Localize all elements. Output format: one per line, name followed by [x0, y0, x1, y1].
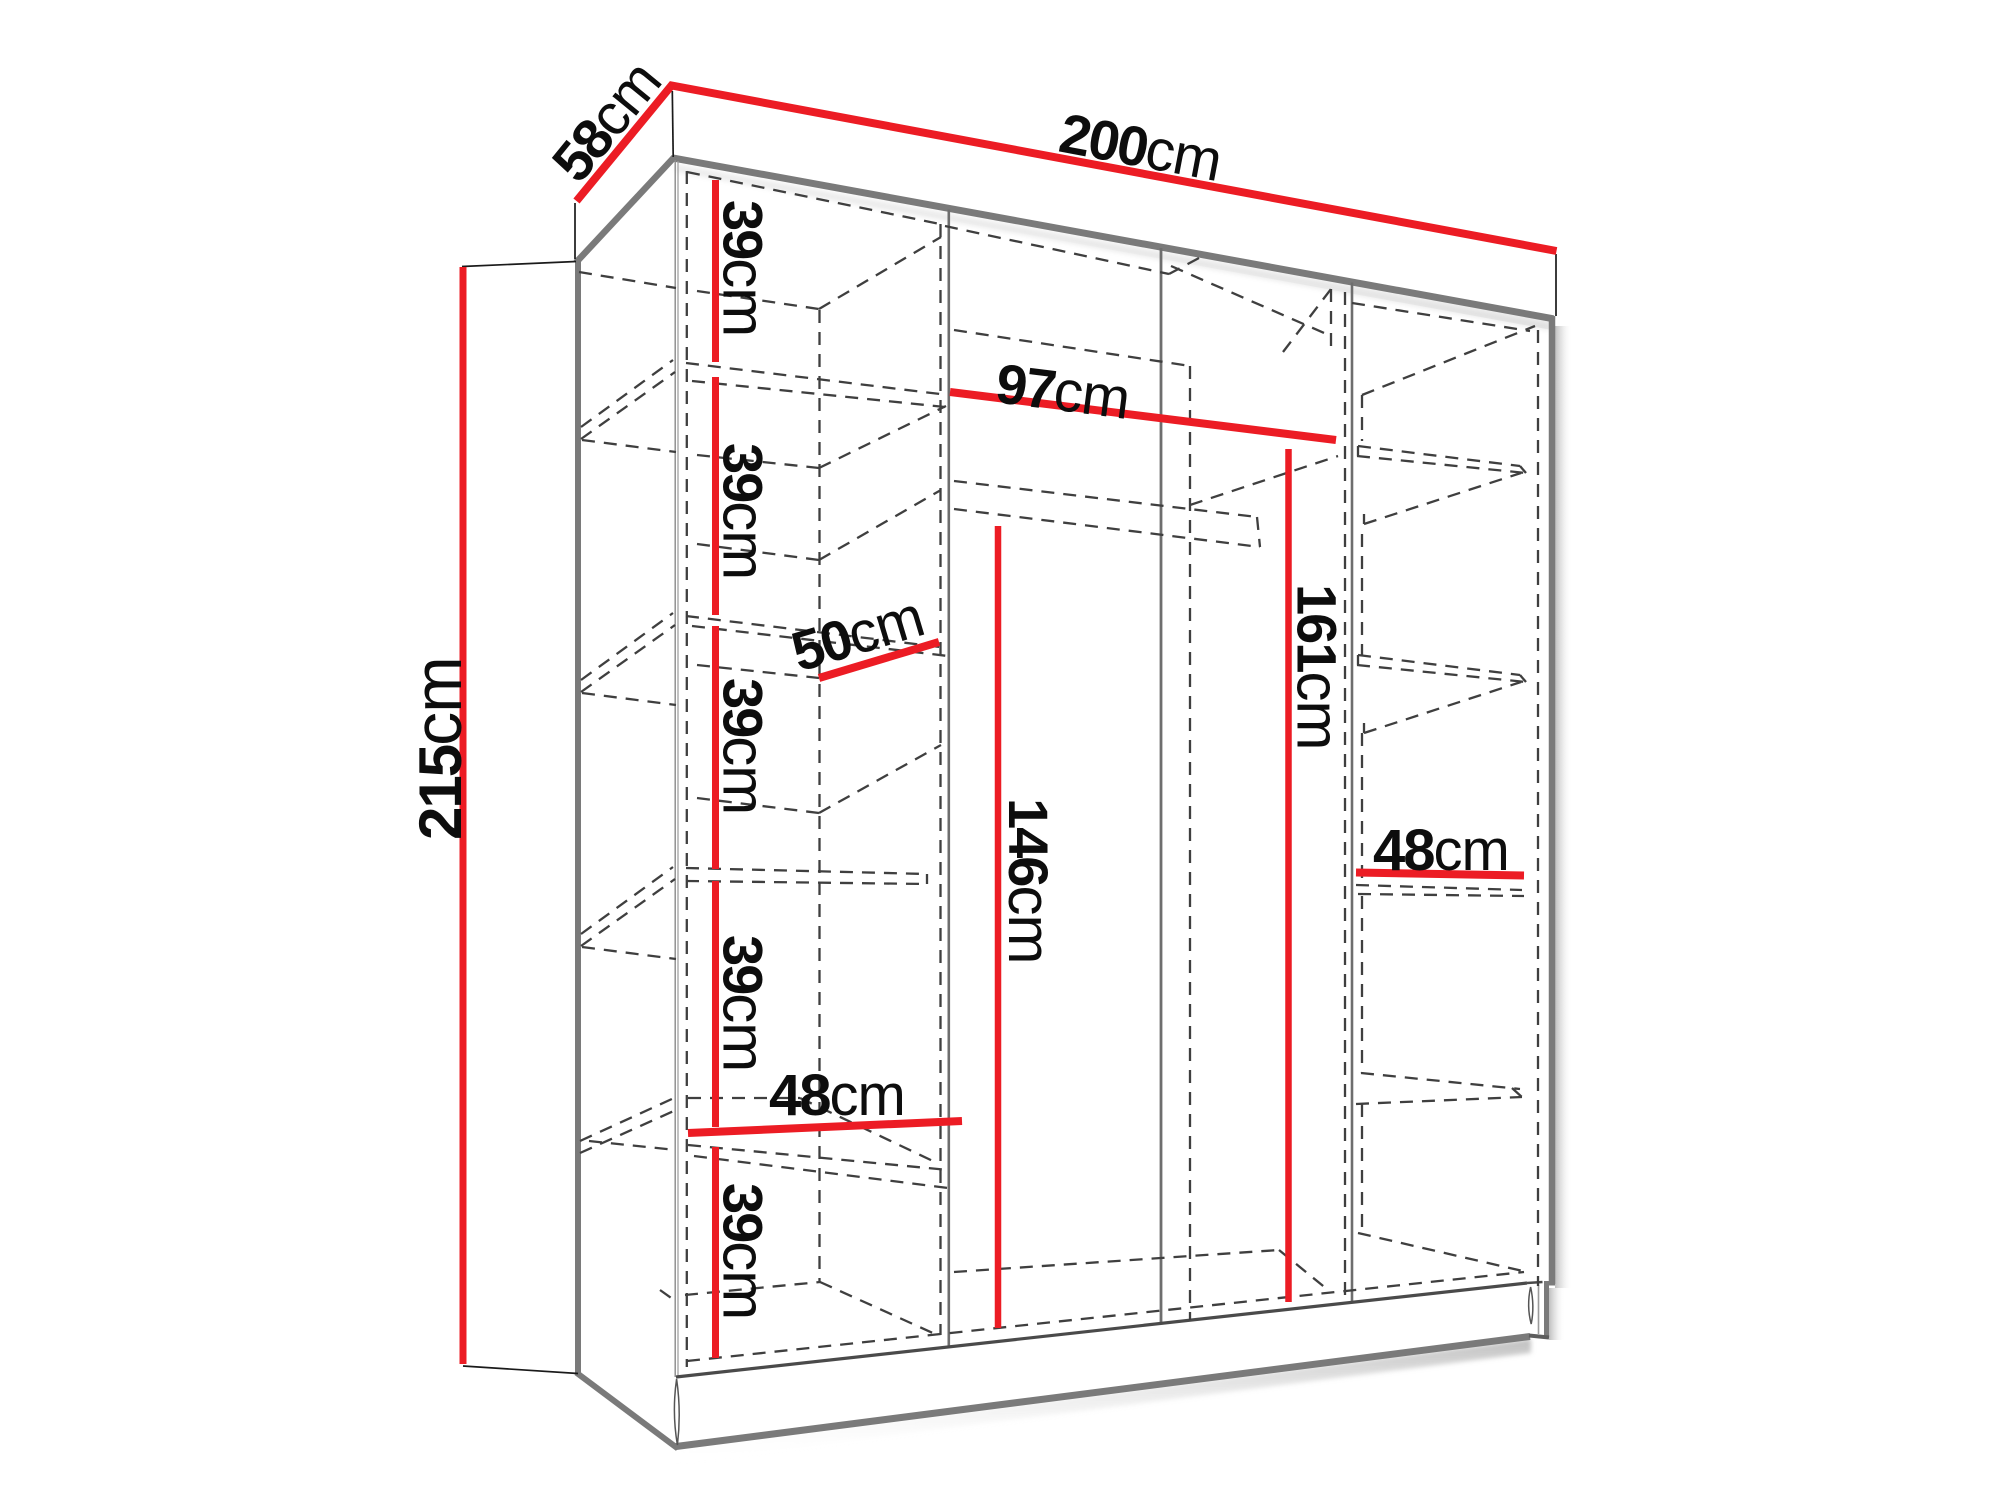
svg-text:200cm: 200cm: [1055, 100, 1227, 194]
svg-text:161cm: 161cm: [1285, 584, 1352, 749]
svg-text:146cm: 146cm: [996, 798, 1063, 963]
svg-text:39cm: 39cm: [711, 678, 778, 814]
svg-text:39cm: 39cm: [711, 200, 778, 336]
svg-text:97cm: 97cm: [992, 350, 1133, 431]
svg-text:48cm: 48cm: [769, 1063, 905, 1128]
svg-text:39cm: 39cm: [711, 443, 778, 579]
svg-text:39cm: 39cm: [711, 935, 778, 1071]
svg-text:215cm: 215cm: [400, 657, 476, 840]
svg-text:58cm: 58cm: [539, 49, 674, 194]
svg-text:39cm: 39cm: [711, 1183, 778, 1319]
svg-text:48cm: 48cm: [1373, 818, 1509, 883]
